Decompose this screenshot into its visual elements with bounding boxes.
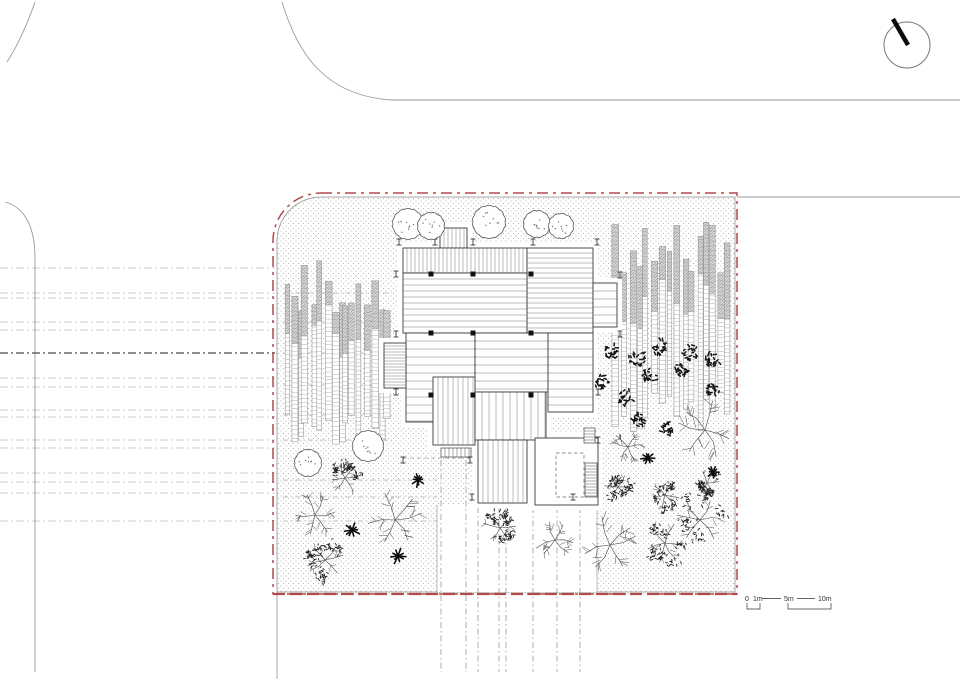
tree-round bbox=[418, 213, 445, 240]
tree-round bbox=[548, 213, 573, 239]
scale-label-10m: 10m bbox=[818, 596, 832, 603]
tree-round bbox=[353, 430, 384, 461]
tree-round bbox=[295, 450, 322, 477]
tree-round bbox=[524, 211, 551, 238]
site-plan-canvas: 0 1m 5m 10m bbox=[0, 0, 960, 679]
scale-label-5m: 5m bbox=[784, 596, 794, 603]
scale-label-0: 0 bbox=[745, 596, 749, 603]
site-plan-drawing: 0 1m 5m 10m bbox=[0, 0, 960, 679]
scale-label-1m: 1m bbox=[753, 596, 763, 603]
north-arrow bbox=[884, 19, 930, 68]
scale-bar: 0 1m 5m 10m bbox=[745, 596, 832, 609]
tree-round bbox=[473, 205, 506, 238]
